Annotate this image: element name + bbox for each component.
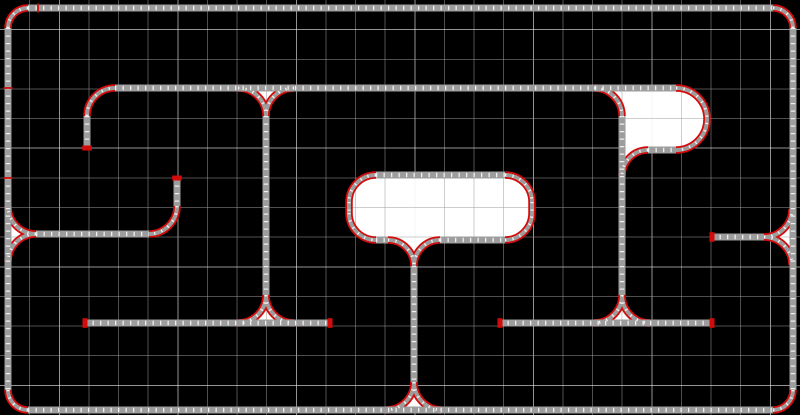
track-layout-svg[interactable] <box>0 0 800 415</box>
track-editor-canvas[interactable] <box>0 0 800 415</box>
